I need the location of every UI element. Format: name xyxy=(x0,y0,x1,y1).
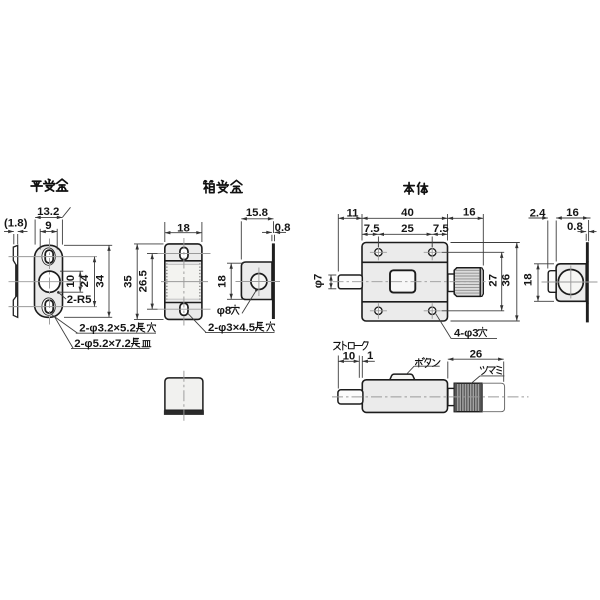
svg-text:10: 10 xyxy=(65,275,77,288)
svg-text:40: 40 xyxy=(401,207,414,219)
svg-text:34: 34 xyxy=(95,274,107,287)
svg-text:4-φ3: 4-φ3 xyxy=(454,327,479,339)
svg-text:0.8: 0.8 xyxy=(567,221,583,233)
svg-text:2-φ3.2×5.2: 2-φ3.2×5.2 xyxy=(79,323,136,335)
svg-text:15.8: 15.8 xyxy=(246,207,268,219)
svg-text:18: 18 xyxy=(523,273,535,286)
svg-text:9: 9 xyxy=(45,220,51,232)
svg-text:2-R5: 2-R5 xyxy=(67,294,92,306)
svg-text:φ8: φ8 xyxy=(217,305,231,317)
svg-text:25: 25 xyxy=(401,223,414,235)
svg-text:18: 18 xyxy=(217,275,229,288)
svg-text:16: 16 xyxy=(463,207,476,219)
svg-text:16: 16 xyxy=(566,207,579,219)
svg-text:(1.8): (1.8) xyxy=(4,218,28,230)
svg-text:10: 10 xyxy=(343,350,356,362)
svg-text:35: 35 xyxy=(122,275,134,288)
svg-text:36: 36 xyxy=(500,274,512,287)
svg-text:26.5: 26.5 xyxy=(137,270,149,293)
svg-text:24: 24 xyxy=(79,274,91,287)
svg-text:1: 1 xyxy=(367,350,374,362)
svg-text:2-φ3×4.5: 2-φ3×4.5 xyxy=(208,322,256,334)
svg-text:27: 27 xyxy=(487,274,499,287)
svg-text:2-φ5.2×7.2: 2-φ5.2×7.2 xyxy=(74,338,131,350)
svg-text:φ7: φ7 xyxy=(312,274,324,288)
